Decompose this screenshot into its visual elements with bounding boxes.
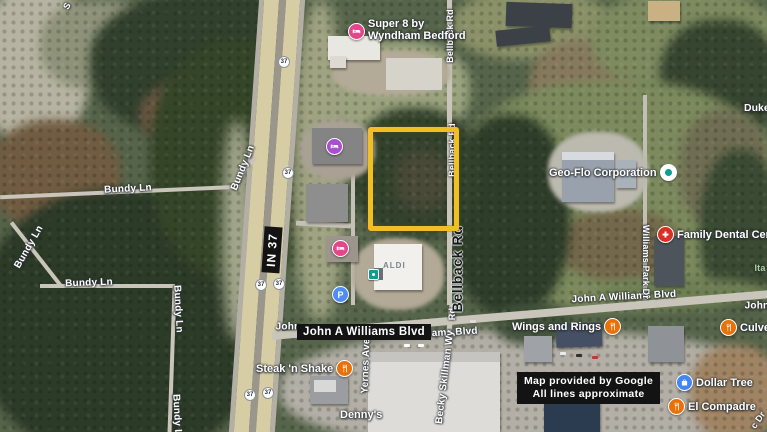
poi-label[interactable]: Denny's bbox=[340, 409, 382, 421]
route-shield-37: 37 bbox=[273, 278, 285, 290]
car bbox=[576, 354, 582, 357]
poi-label[interactable]: Geo-Flo Corporation bbox=[549, 167, 657, 179]
building-culvers bbox=[648, 326, 684, 362]
parking-pad bbox=[386, 58, 442, 90]
restaurant-icon[interactable] bbox=[720, 319, 737, 336]
annotation-john-a-williams: John A Williams Blvd bbox=[297, 324, 431, 340]
route-shield-37: 37 bbox=[262, 387, 274, 399]
route-shield-37: 37 bbox=[255, 279, 267, 291]
car bbox=[470, 320, 476, 323]
car bbox=[404, 344, 410, 347]
annotation-in37: IN 37 bbox=[261, 227, 282, 274]
poi-lodging-3[interactable] bbox=[332, 240, 349, 257]
road-label-williams-park-dr: Williams Park Dr bbox=[641, 225, 651, 299]
parking-glyph: P bbox=[337, 290, 343, 300]
poi-steak-n-shake[interactable]: Steak 'n Shake bbox=[256, 360, 353, 377]
satellite-map[interactable]: ALDI S Bellback Rd Bellback Rd Bundy Ln … bbox=[0, 0, 767, 432]
building-dark-roof bbox=[506, 2, 573, 28]
route-shield-37: 37 bbox=[244, 389, 256, 401]
attribution-line2: All lines approximate bbox=[524, 388, 653, 401]
building-super8 bbox=[330, 56, 346, 68]
business-icon[interactable] bbox=[660, 164, 677, 181]
parking-icon[interactable]: P bbox=[332, 286, 349, 303]
poi-dollar-tree[interactable]: Dollar Tree bbox=[676, 374, 753, 391]
car bbox=[418, 344, 424, 347]
lodging-icon[interactable] bbox=[348, 23, 365, 40]
property-boundary bbox=[368, 127, 459, 231]
poi-dennys[interactable]: Denny's bbox=[340, 409, 382, 421]
annotation-bellback-rd: Bellback Rd bbox=[449, 226, 465, 313]
restaurant-icon[interactable] bbox=[336, 360, 353, 377]
poi-label[interactable]: Super 8 by Wyndham Bedford bbox=[368, 18, 466, 42]
road-label-bundy-3: Bundy Ln bbox=[65, 277, 113, 290]
building-small bbox=[524, 336, 552, 362]
poi-label-line1[interactable]: Super 8 by bbox=[368, 18, 466, 30]
poi-label[interactable]: Dollar Tree bbox=[696, 377, 753, 389]
poi-el-compadre[interactable]: El Compadre bbox=[668, 398, 756, 415]
poi-parking[interactable]: P bbox=[332, 286, 349, 303]
building-steak-n-shake bbox=[314, 380, 336, 392]
building-warehouse bbox=[368, 352, 500, 362]
poi-super8[interactable]: Super 8 by Wyndham Bedford bbox=[348, 18, 466, 42]
building-geoflo bbox=[562, 152, 614, 160]
poi-culvers[interactable]: Culver's bbox=[720, 319, 767, 336]
poi-label[interactable]: Culver's bbox=[740, 322, 767, 334]
park-label-frag: Ita bbox=[754, 263, 765, 273]
lodging-icon[interactable] bbox=[326, 138, 343, 155]
poi-label[interactable]: Family Dental Centre bbox=[677, 229, 767, 241]
shopping-icon[interactable] bbox=[676, 374, 693, 391]
poi-label-line2[interactable]: Wyndham Bedford bbox=[368, 30, 466, 42]
poi-lodging-2[interactable] bbox=[326, 138, 343, 155]
medical-icon[interactable] bbox=[657, 226, 674, 243]
poi-wings-and-rings[interactable]: Wings and Rings bbox=[512, 318, 621, 335]
building-tan bbox=[648, 1, 680, 21]
car bbox=[560, 352, 566, 355]
road-label-john-frag-right: John bbox=[745, 301, 767, 312]
poi-label[interactable]: El Compadre bbox=[688, 401, 756, 413]
building-family-dental bbox=[654, 236, 684, 286]
road-label-yernes-ave: Yernes Ave bbox=[360, 338, 373, 394]
aldi-roof-text: ALDI bbox=[383, 261, 406, 270]
poi-family-dental[interactable]: Family Dental Centre bbox=[657, 226, 767, 243]
business-marker-icon[interactable] bbox=[368, 269, 379, 280]
map-attribution: Map provided by Google All lines approxi… bbox=[517, 372, 660, 404]
poi-label[interactable]: Wings and Rings bbox=[512, 321, 601, 333]
poi-duke-frag[interactable]: Duke bbox=[744, 102, 767, 114]
lodging-icon[interactable] bbox=[332, 240, 349, 257]
poi-label[interactable]: Steak 'n Shake bbox=[256, 363, 333, 375]
route-shield-37: 37 bbox=[278, 56, 290, 68]
poi-label[interactable]: Duke bbox=[744, 102, 767, 114]
building-hotel bbox=[306, 184, 348, 222]
car bbox=[592, 356, 598, 359]
attribution-line1: Map provided by Google bbox=[524, 375, 653, 388]
restaurant-icon[interactable] bbox=[668, 398, 685, 415]
route-shield-37: 37 bbox=[282, 167, 294, 179]
poi-geoflo[interactable]: Geo-Flo Corporation bbox=[549, 164, 677, 181]
restaurant-icon[interactable] bbox=[604, 318, 621, 335]
